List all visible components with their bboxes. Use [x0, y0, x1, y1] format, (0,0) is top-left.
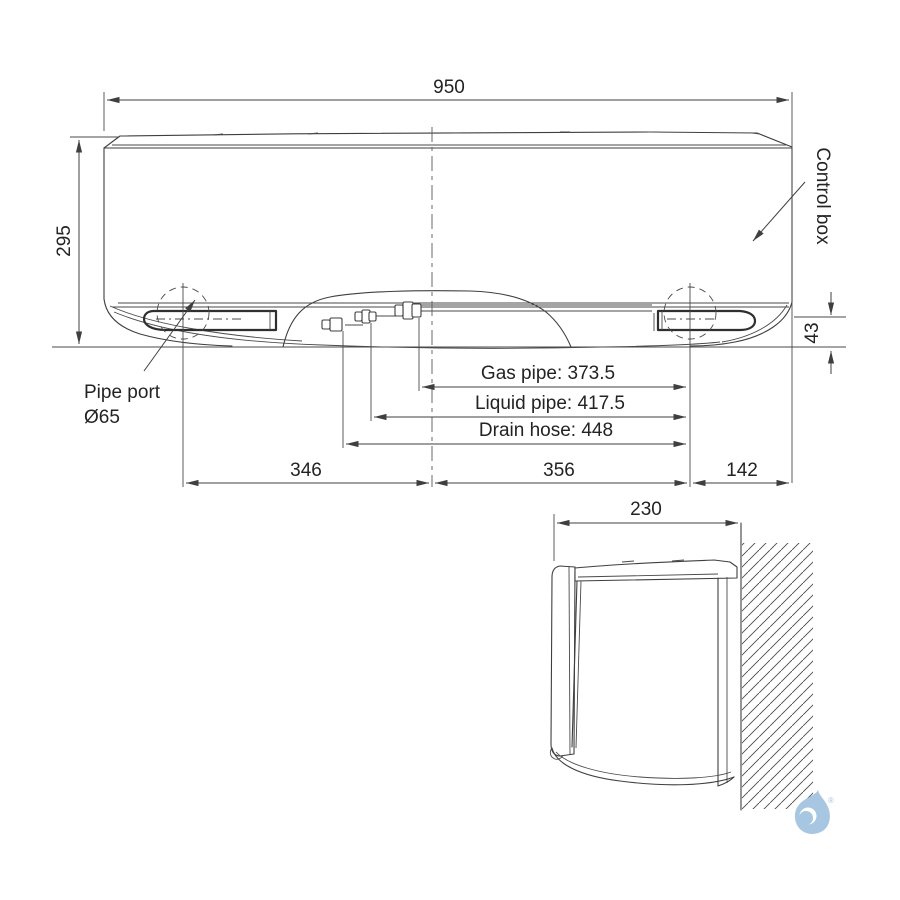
dimensional-drawing-page: 950 295 43 Control box Pipe port Ø65 Gas…	[0, 0, 900, 900]
dim-43: 43	[802, 322, 823, 343]
dim-drain-hose: Drain hose: 448	[479, 420, 613, 441]
unit-side-profile	[550, 560, 737, 786]
dim-gas-pipe: Gas pipe: 373.5	[481, 363, 615, 384]
pipe-port-label-line2: Ø65	[84, 407, 120, 428]
gas-pipe-fitting	[395, 302, 652, 319]
wall-hatching	[742, 543, 813, 809]
dim-depth-230: 230	[630, 499, 662, 520]
side-view: 230	[550, 499, 813, 810]
registered-trademark: ®	[828, 796, 834, 805]
pipe-port-label-line1: Pipe port	[84, 382, 161, 403]
front-view-dimensions: 950 295 43 Control box Pipe port Ø65 Gas…	[52, 77, 846, 487]
front-view	[104, 132, 792, 348]
pipe-cover-mound	[283, 291, 652, 347]
dim-346: 346	[290, 460, 322, 481]
dim-width-950: 950	[433, 77, 465, 98]
unit-bottom-band	[104, 299, 792, 348]
dim-142: 142	[726, 460, 758, 481]
dim-356: 356	[543, 460, 575, 481]
pipe-port-right	[654, 287, 755, 339]
dim-liquid-pipe: Liquid pipe: 417.5	[475, 393, 625, 414]
dim-height-295: 295	[54, 225, 75, 257]
unit-top-panel	[104, 132, 792, 148]
ac-unit-dimensional-drawing: 950 295 43 Control box Pipe port Ø65 Gas…	[0, 0, 900, 900]
water-drop-dot	[799, 811, 813, 825]
control-box-label: Control box	[812, 147, 833, 245]
